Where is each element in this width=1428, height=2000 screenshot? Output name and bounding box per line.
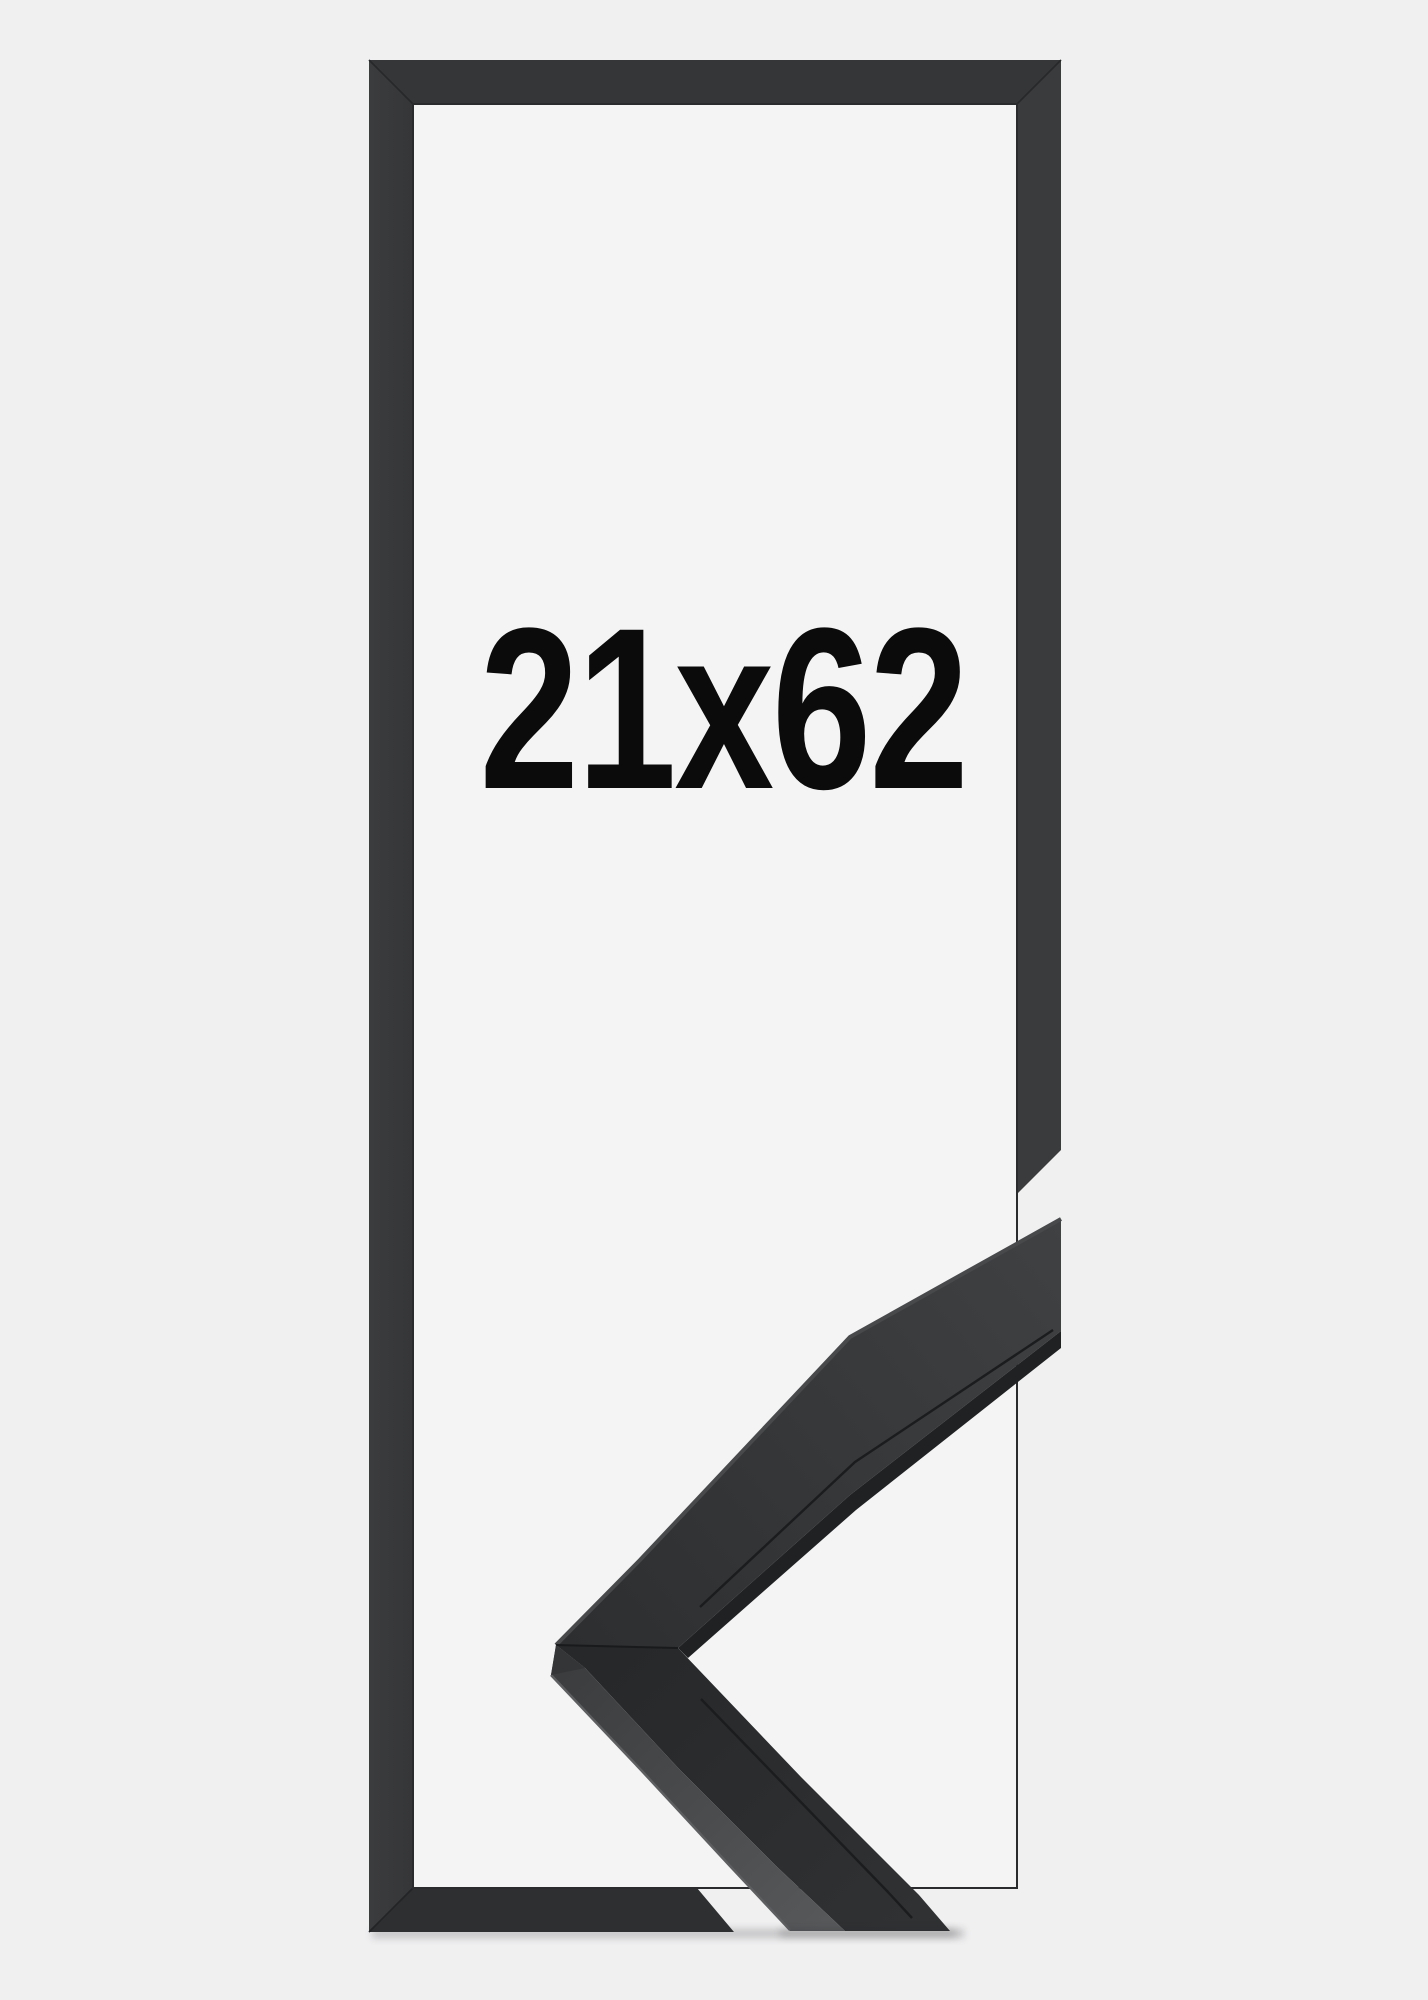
product-photo: 21x62 xyxy=(0,0,1428,2000)
size-label: 21x62 xyxy=(479,594,950,824)
frame-photo-graphic xyxy=(0,0,1428,2000)
frame-left-bar xyxy=(369,60,413,1932)
sample-shadow xyxy=(780,1929,955,1937)
frame-bottom-bar xyxy=(369,1888,734,1932)
frame-top-bar xyxy=(369,60,1061,104)
frame-right-bar xyxy=(1017,60,1061,1194)
